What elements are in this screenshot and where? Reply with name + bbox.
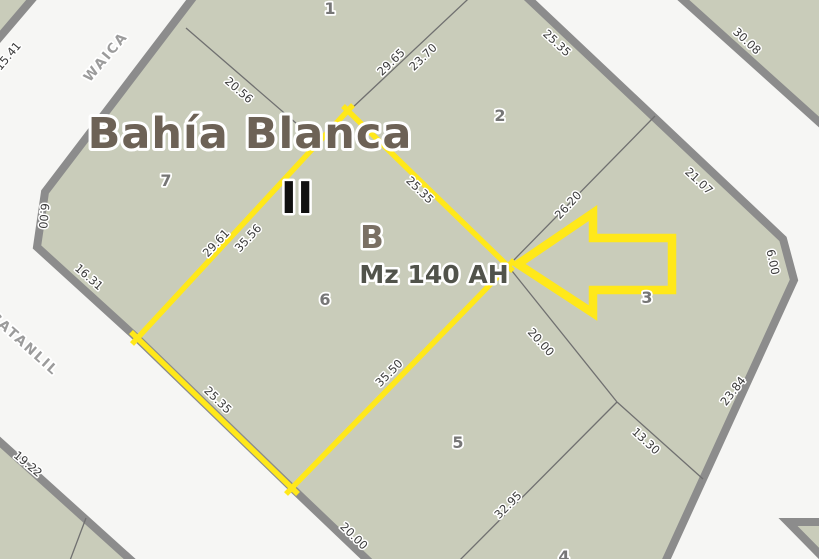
map-canvas[interactable]: Bahía Blanca II B Mz 140 AH WAICA CATANL… [0,0,819,559]
section-label: II [281,173,314,224]
parcel-number-5: 5 [452,433,463,452]
parcel-number-6: 6 [319,290,330,309]
parcel-number-2: 2 [494,106,505,125]
parcel-number-7: 7 [160,171,171,190]
city-title: Bahía Blanca [88,109,413,159]
parcel-number-3: 3 [641,288,652,307]
zone-label: B [360,220,384,256]
parcel-number-1: 1 [324,0,335,18]
measurement-label: 6.00 [36,203,52,230]
block-label: Mz 140 AH [359,260,508,289]
parcel-number-4: 4 [558,547,569,559]
